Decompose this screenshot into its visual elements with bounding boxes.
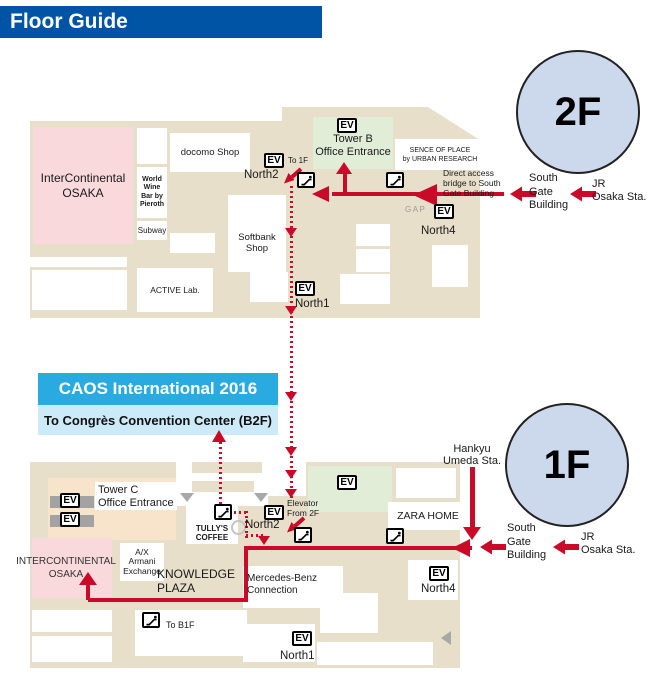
dotted-arrowhead-down — [258, 536, 270, 545]
banner-title-bar: CAOS International 2016 — [38, 373, 278, 405]
room-docomo: docomo Shop — [170, 133, 250, 172]
ev-icon-tower-c-2: EV — [60, 512, 80, 527]
dotted-arrowhead-down — [285, 447, 297, 456]
route-branch-tower-b — [343, 172, 347, 196]
label-active-lab: ACTIVE Lab. — [150, 285, 200, 295]
dotted-arrowhead-down — [285, 228, 297, 237]
ev-icon-tower-b: EV — [337, 118, 357, 133]
route-line-1f — [245, 546, 472, 550]
label-north2-1f: North2 — [245, 519, 280, 531]
label-north4-1f: North4 — [421, 583, 456, 595]
label-elevator-from-2f: Elevator From 2F — [287, 499, 319, 518]
ev-icon-north4-2f: EV — [434, 204, 454, 219]
label-zara: ZARA HOME — [397, 510, 459, 522]
escalator-icon — [294, 527, 312, 543]
room-1f-br-a — [320, 593, 378, 633]
label-intercontinental-1f-box: INTERCONTINENTAL OSAKA — [8, 554, 124, 582]
room-intercontinental-2f: InterContinental OSAKA — [33, 127, 133, 244]
dotted-arrowhead-up — [212, 430, 226, 442]
room-2f-d — [432, 245, 468, 287]
label-north1-2f: North1 — [295, 298, 330, 310]
room-small-2f — [137, 128, 167, 164]
label-docomo: docomo Shop — [181, 147, 240, 158]
room-1f-bl-b — [32, 636, 112, 662]
route-arrowhead-left-1f — [452, 539, 470, 557]
label-gap: GAP — [405, 205, 426, 214]
escalator-icon — [386, 528, 404, 544]
label-jr-osaka-1f: JR Osaka Sta. — [581, 531, 635, 557]
route-line-1f-west — [88, 598, 248, 602]
route-arrowhead-left-big-2f — [413, 184, 437, 206]
floor2-badge-circle: 2F — [516, 50, 640, 174]
room-2f-b — [356, 249, 390, 272]
crosswalk-stripe — [192, 462, 262, 473]
room-2f-c — [340, 274, 390, 304]
label-north4-2f: North4 — [421, 225, 456, 237]
banner-title: CAOS International 2016 — [59, 379, 257, 399]
room-1f-br-b — [317, 642, 433, 665]
banner-subtitle-bar: To Congrès Convention Center (B2F) — [38, 405, 278, 435]
route-arrowhead-up-tower-b — [336, 162, 352, 174]
label-south-gate-2f: South Gate Building — [529, 172, 568, 213]
dotted-arrowhead-down — [285, 470, 297, 479]
floor2-edge-notch — [30, 107, 282, 121]
label-subway: Subway — [138, 226, 166, 235]
banner-subtitle: To Congrès Convention Center (B2F) — [44, 413, 272, 428]
entrance-marker-icon — [254, 493, 268, 502]
ev-icon-north4-1f: EV — [429, 566, 449, 581]
label-sence-of-place: SENCE OF PLACE by URBAN RESEARCH — [403, 146, 478, 164]
room-2f-a — [356, 224, 390, 246]
escalator-icon — [142, 612, 160, 628]
label-north1-1f: North1 — [280, 650, 315, 662]
label-knowledge-plaza: KNOWLEDGE PLAZA — [157, 567, 235, 595]
room-1f-right-top — [396, 468, 456, 498]
route-arrowhead-left-2f — [312, 186, 329, 202]
crosswalk-stripe — [192, 481, 254, 492]
label-to-1f: To 1F — [288, 156, 308, 165]
ev-icon-north1-1f: EV — [292, 631, 312, 646]
room-active-lab: ACTIVE Lab. — [137, 268, 213, 312]
label-direct-access: Direct access bridge to South Gate Build… — [443, 168, 501, 198]
arrow-left-icon — [480, 539, 506, 555]
floor-guide-page: Floor Guide InterContinental OSAKA World… — [0, 0, 650, 680]
label-hankyu: Hankyu Umeda Sta. — [443, 443, 501, 467]
floor1-badge-circle: 1F — [505, 403, 629, 527]
room-2f-e — [250, 272, 288, 302]
entrance-marker-icon — [441, 631, 451, 645]
dotted-arrowhead-down — [285, 392, 297, 401]
label-mercedes: Mercedes-Benz Connection — [247, 573, 317, 597]
label-intercontinental-2f: InterContinental OSAKA — [41, 171, 126, 201]
room-strip-2f — [30, 257, 127, 267]
label-tower-b: Tower B Office Entrance — [315, 133, 391, 159]
route-dotted-to-banner — [219, 442, 222, 506]
room-corridor-2f — [170, 233, 215, 253]
label-tower-c: Tower C Office Entrance — [98, 484, 174, 509]
ev-icon-north2-1f: EV — [264, 505, 284, 520]
label-to-b1f: To B1F — [166, 620, 195, 630]
room-1f-bl-a — [32, 610, 112, 632]
escalator-icon — [386, 172, 404, 188]
room-world-wine-bar: World Wine Bar by Pieroth — [137, 167, 167, 218]
escalator-icon — [214, 504, 232, 520]
label-hankyu-box: Hankyu Umeda Sta. — [438, 443, 506, 467]
room-bottomleft-2f — [32, 270, 127, 310]
arrow-left-icon — [553, 539, 579, 555]
ev-icon-tower-c-1: EV — [60, 493, 80, 508]
label-tower-b-box: Tower B Office Entrance — [303, 132, 403, 160]
label-tullys-box: TULLY'S COFFEE — [184, 524, 240, 542]
hankyu-arrowhead-down — [463, 527, 481, 540]
floor2-badge: 2F — [555, 90, 602, 135]
label-south-gate-1f: South Gate Building — [507, 522, 546, 563]
label-north2-2f: North2 — [244, 169, 279, 181]
label-softbank: Softbank Shop — [238, 232, 276, 254]
ev-icon-north1-2f: EV — [295, 281, 315, 296]
label-tullys: TULLY'S COFFEE — [196, 524, 228, 542]
dotted-arrowhead-down — [285, 489, 297, 498]
hankyu-arrow-line — [470, 467, 475, 529]
header-bar: Floor Guide — [0, 6, 322, 38]
route-line-1f-up — [86, 584, 90, 600]
label-softbank-box: Softbank Shop — [228, 226, 286, 260]
floor1-badge: 1F — [544, 443, 591, 488]
ev-icon-green-1f: EV — [337, 475, 357, 490]
label-armani: A/X Armani Exchange — [123, 548, 161, 577]
escalator-icon — [297, 172, 315, 188]
label-jr-osaka-2f: JR Osaka Sta. — [592, 178, 646, 204]
page-title: Floor Guide — [0, 10, 128, 34]
ev-icon-north2-2f: EV — [264, 153, 284, 168]
room-zara: ZARA HOME — [388, 502, 468, 530]
room-sence-of-place: SENCE OF PLACE by URBAN RESEARCH — [395, 139, 485, 170]
room-subway: Subway — [137, 221, 167, 240]
label-intercontinental-1f: INTERCONTINENTAL OSAKA — [16, 555, 116, 581]
entrance-marker-icon — [180, 493, 194, 502]
label-world-wine-bar: World Wine Bar by Pieroth — [140, 176, 164, 210]
